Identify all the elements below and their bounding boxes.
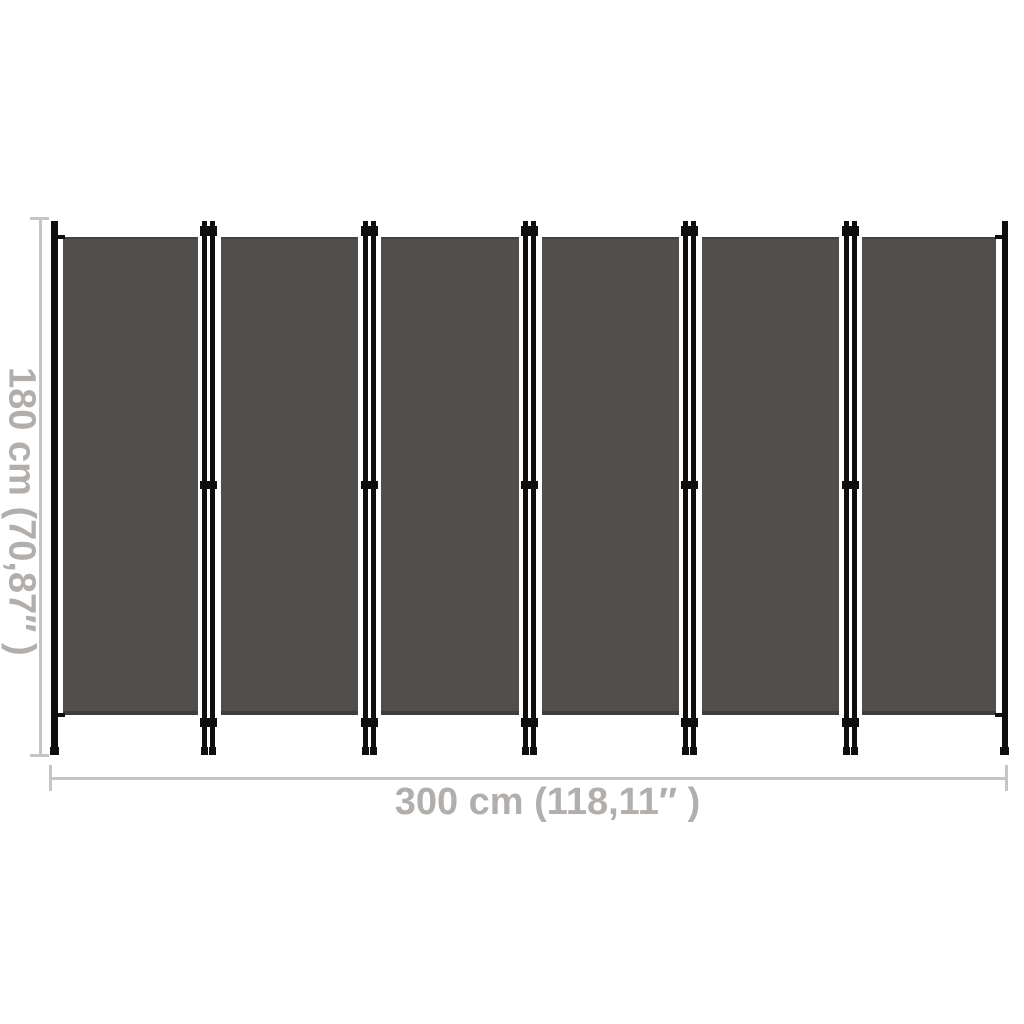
frame-post-right-stub-top [995, 235, 1002, 239]
hinge-bracket-middle [200, 481, 217, 489]
hinge-foot-right [851, 747, 858, 755]
hinge-bracket-top [361, 226, 378, 236]
divider-panel-5 [702, 237, 840, 715]
frame-post-left-stub-bottom [58, 713, 65, 717]
hinge-5 [844, 221, 857, 755]
width-dimension-label: 300 cm (118,11″ ) [50, 781, 1007, 824]
product-dimension-image: 180 cm (70,87″ ) 300 cm (118,11″ ) [0, 0, 1024, 1024]
hinge-foot-left [843, 747, 850, 755]
frame-post-right-foot [1000, 747, 1009, 755]
hinge-bracket-middle [681, 481, 698, 489]
hinge-foot-right [209, 747, 216, 755]
hinge-1 [202, 221, 215, 755]
hinge-foot-left [201, 747, 208, 755]
frame-post-left [51, 221, 58, 755]
hinge-bracket-bottom [842, 718, 859, 727]
hinge-foot-right [530, 747, 537, 755]
hinge-foot-left [522, 747, 529, 755]
divider-panel-3 [381, 237, 519, 715]
height-dimension-label: 180 cm (70,87″ ) [0, 218, 42, 756]
hinge-bracket-top [200, 226, 217, 236]
hinge-4 [683, 221, 696, 755]
hinge-bracket-middle [361, 481, 378, 489]
hinge-bracket-middle [842, 481, 859, 489]
hinge-bracket-top [681, 226, 698, 236]
hinge-foot-left [682, 747, 689, 755]
frame-post-right-stub-bottom [995, 713, 1002, 717]
hinge-bracket-bottom [521, 718, 538, 727]
hinge-bracket-bottom [200, 718, 217, 727]
hinge-bracket-bottom [361, 718, 378, 727]
divider-panel-4 [542, 237, 680, 715]
hinge-bracket-top [842, 226, 859, 236]
hinge-foot-right [690, 747, 697, 755]
hinge-foot-left [362, 747, 369, 755]
divider-panel-2 [221, 237, 359, 715]
frame-post-left-stub-top [58, 235, 65, 239]
frame-post-right [1002, 221, 1009, 755]
width-dimension-line [50, 777, 1007, 780]
frame-post-left-foot [50, 747, 59, 755]
room-divider [51, 221, 1008, 755]
divider-panel-1 [63, 237, 198, 715]
hinge-bracket-middle [521, 481, 538, 489]
hinge-bracket-top [521, 226, 538, 236]
hinge-2 [363, 221, 376, 755]
hinge-3 [523, 221, 536, 755]
divider-panel-6 [862, 237, 996, 715]
hinge-foot-right [370, 747, 377, 755]
hinge-bracket-bottom [681, 718, 698, 727]
